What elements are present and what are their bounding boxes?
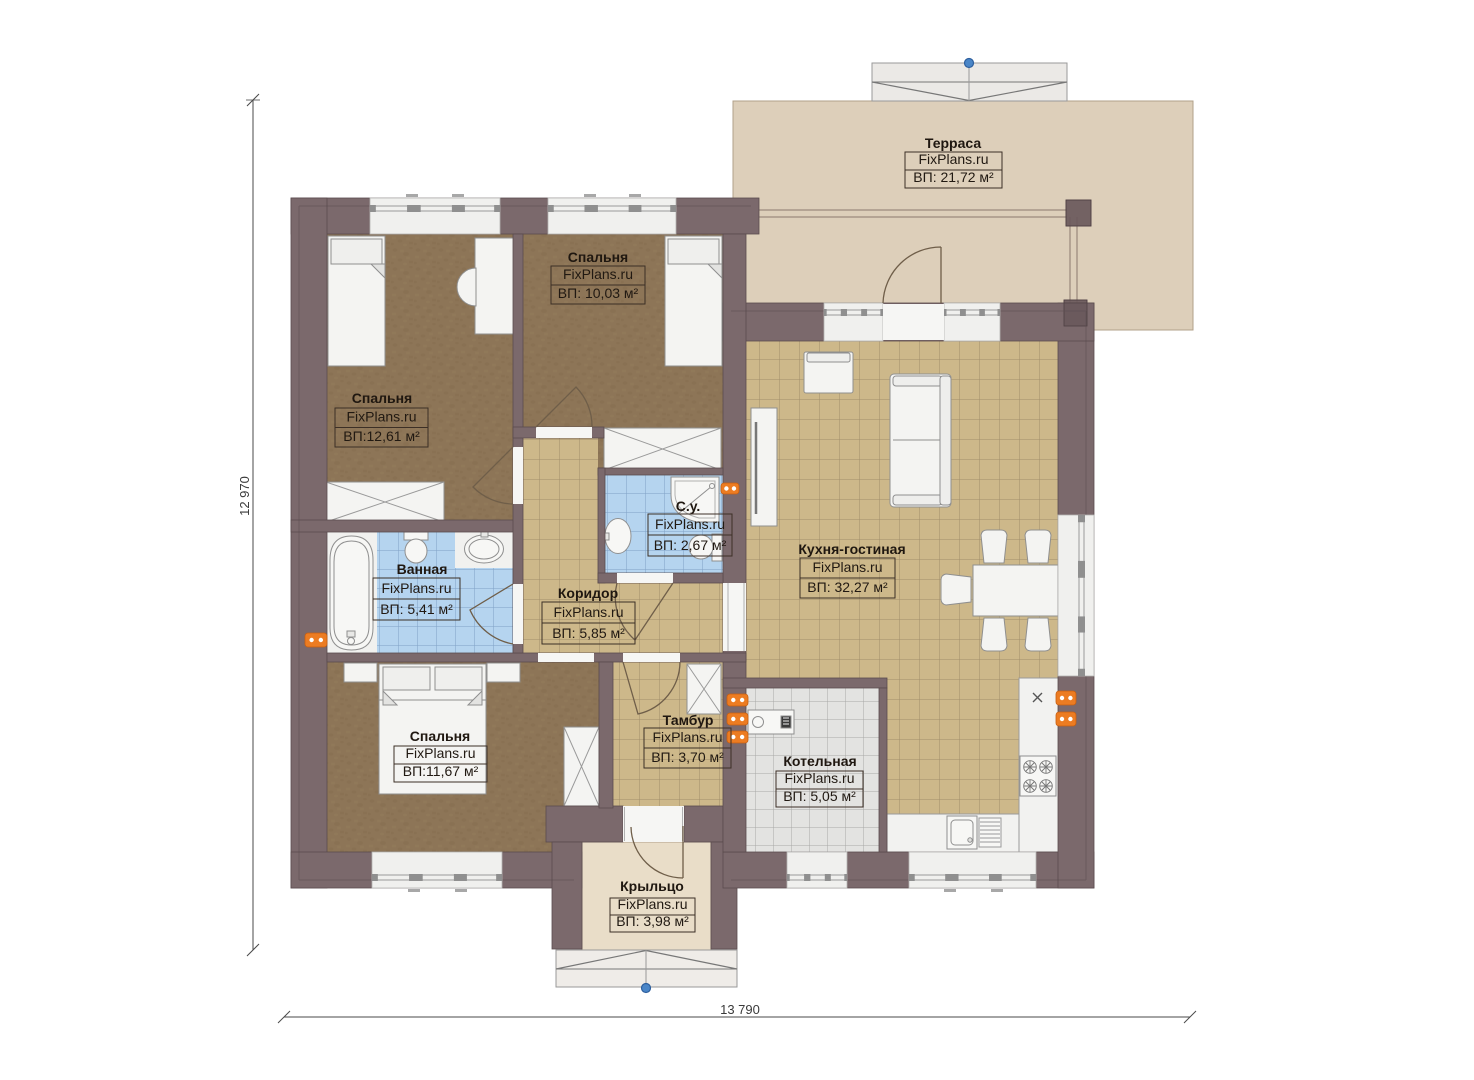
svg-text:13 790: 13 790 (720, 1002, 760, 1017)
svg-text:FixPlans.ru: FixPlans.ru (812, 559, 882, 575)
svg-text:ВП: 2,67 м²: ВП: 2,67 м² (654, 537, 727, 553)
svg-text:Крыльцо: Крыльцо (620, 878, 684, 894)
svg-text:Спальня: Спальня (352, 390, 412, 406)
svg-text:FixPlans.ru: FixPlans.ru (784, 770, 854, 786)
svg-text:ВП:11,67 м²: ВП:11,67 м² (403, 763, 479, 779)
svg-text:ВП: 5,41 м²: ВП: 5,41 м² (380, 601, 453, 617)
svg-text:ВП: 5,85 м²: ВП: 5,85 м² (552, 625, 625, 641)
svg-text:Терраса: Терраса (925, 135, 981, 151)
svg-text:С.у.: С.у. (676, 498, 700, 514)
svg-text:FixPlans.ru: FixPlans.ru (918, 151, 988, 167)
svg-text:FixPlans.ru: FixPlans.ru (405, 745, 475, 761)
svg-text:Коридор: Коридор (558, 585, 618, 601)
svg-text:ВП: 3,70 м²: ВП: 3,70 м² (651, 749, 724, 765)
svg-text:ВП: 5,05 м²: ВП: 5,05 м² (783, 788, 856, 804)
svg-text:Тамбур: Тамбур (663, 712, 714, 728)
svg-text:ВП:12,61 м²: ВП:12,61 м² (343, 428, 420, 444)
svg-text:FixPlans.ru: FixPlans.ru (381, 580, 451, 596)
svg-text:ВП: 10,03 м²: ВП: 10,03 м² (558, 285, 639, 301)
svg-text:FixPlans.ru: FixPlans.ru (563, 266, 633, 282)
svg-text:Котельная: Котельная (783, 753, 856, 769)
svg-text:Кухня-гостиная: Кухня-гостиная (798, 541, 905, 557)
svg-text:FixPlans.ru: FixPlans.ru (652, 729, 722, 745)
svg-text:Спальня: Спальня (410, 728, 470, 744)
svg-text:Спальня: Спальня (568, 249, 628, 265)
svg-text:FixPlans.ru: FixPlans.ru (617, 896, 687, 912)
svg-text:FixPlans.ru: FixPlans.ru (553, 604, 623, 620)
svg-text:ВП: 3,98 м²: ВП: 3,98 м² (616, 913, 689, 929)
svg-text:ВП: 32,27 м²: ВП: 32,27 м² (807, 579, 888, 595)
svg-text:FixPlans.ru: FixPlans.ru (346, 409, 416, 425)
svg-text:FixPlans.ru: FixPlans.ru (655, 516, 725, 532)
svg-text:Ванная: Ванная (397, 561, 448, 577)
svg-text:12 970: 12 970 (237, 476, 252, 516)
svg-text:ВП: 21,72 м²: ВП: 21,72 м² (913, 169, 994, 185)
